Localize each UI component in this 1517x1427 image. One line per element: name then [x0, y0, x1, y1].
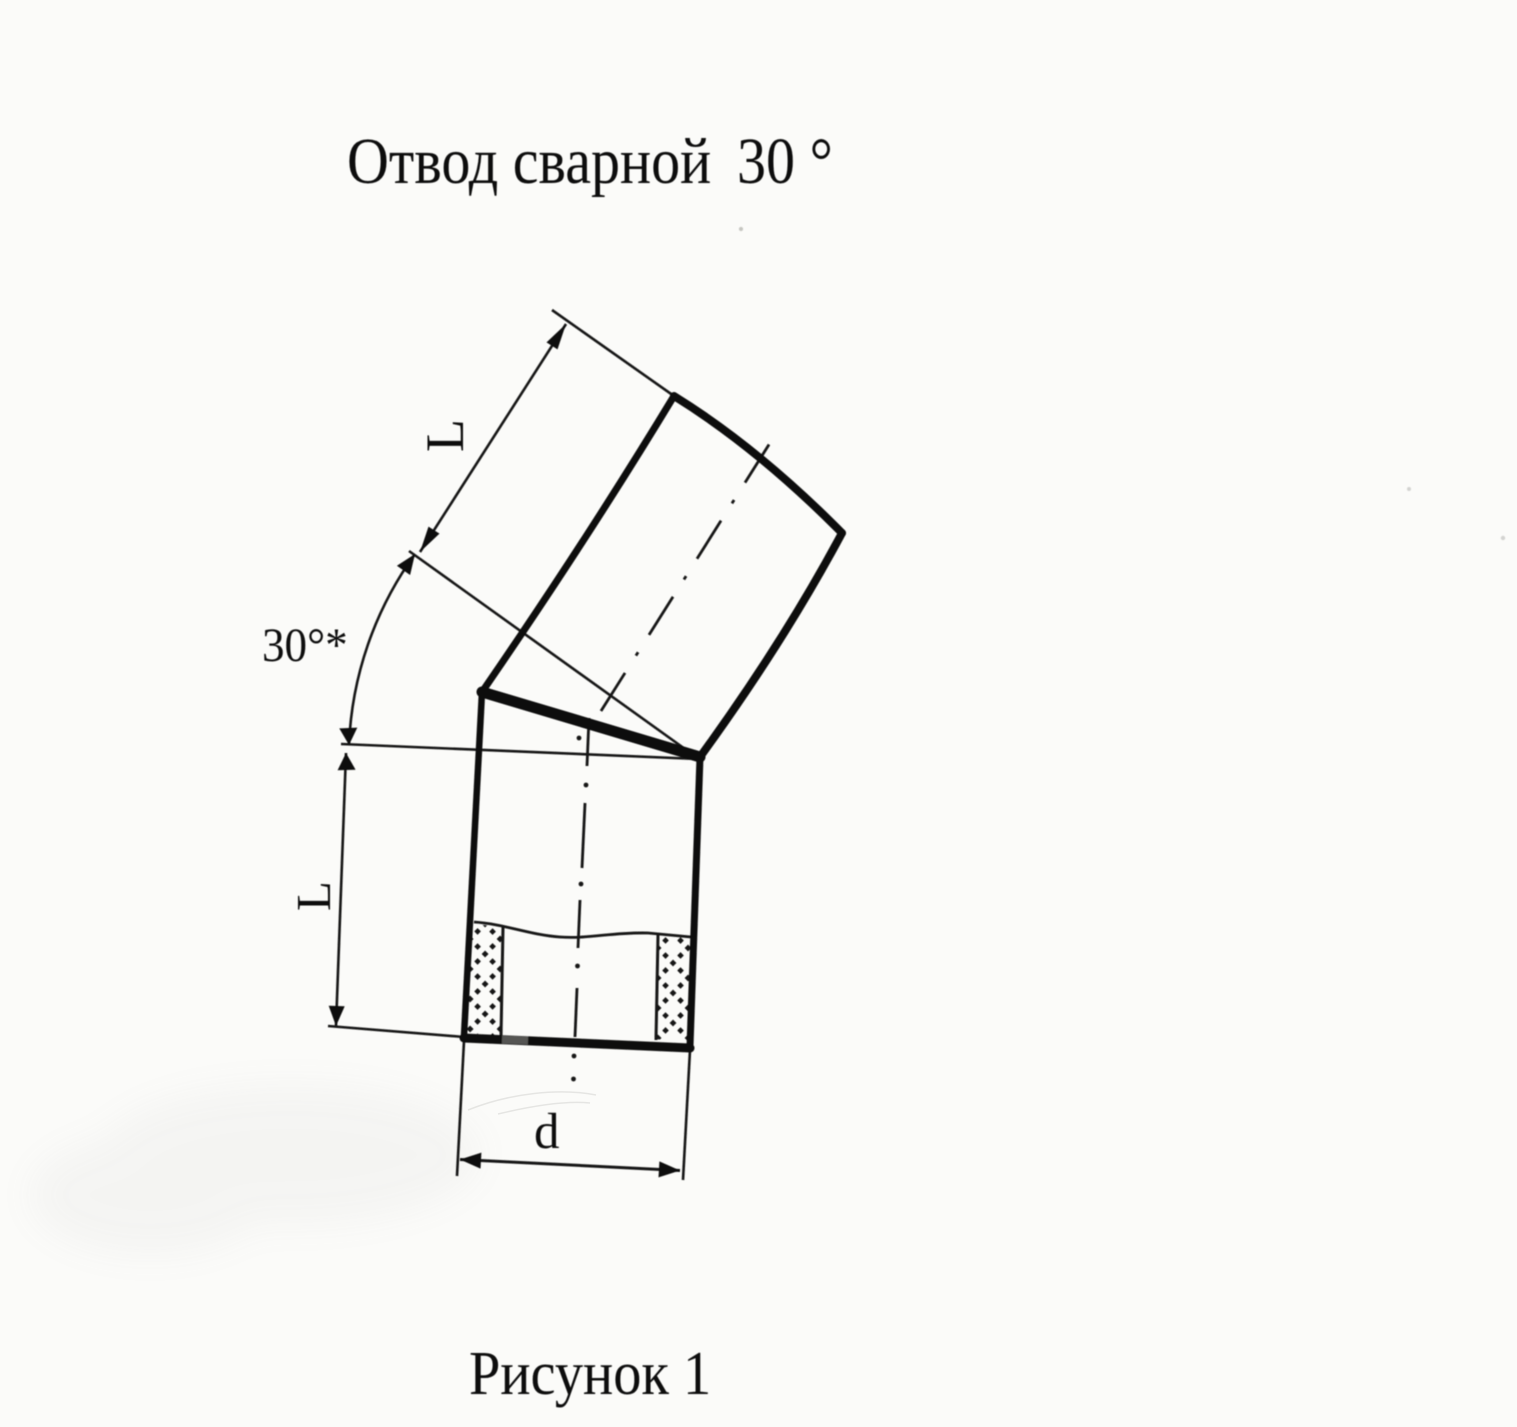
svg-text:L: L — [415, 419, 475, 452]
svg-text:Рисунок 1: Рисунок 1 — [469, 1339, 711, 1408]
svg-text:30 °: 30 ° — [737, 126, 833, 198]
svg-text:d: d — [534, 1104, 560, 1160]
svg-text:Отвод сварной: Отвод сварной — [347, 126, 711, 198]
svg-text:30°*: 30°* — [262, 619, 348, 673]
svg-text:L: L — [286, 881, 341, 911]
